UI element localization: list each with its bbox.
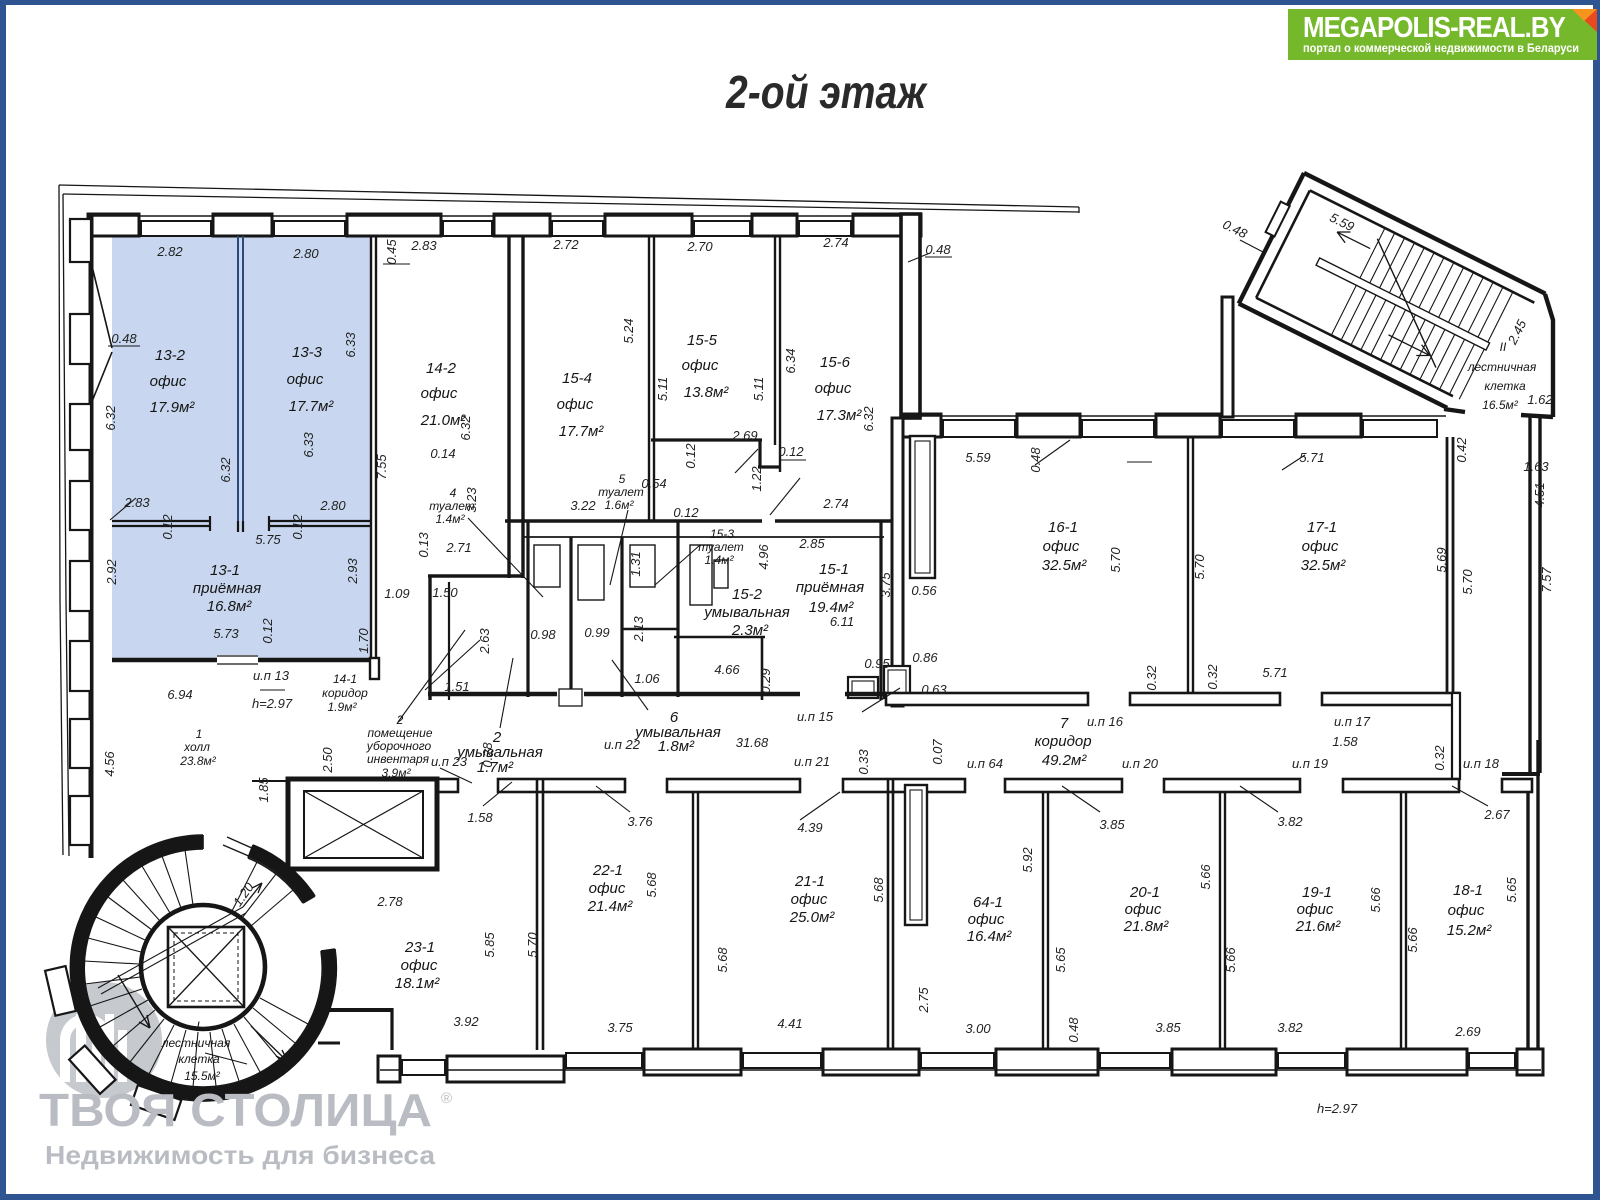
svg-text:1.58: 1.58	[1332, 734, 1358, 749]
svg-text:5.75: 5.75	[255, 532, 281, 547]
svg-text:0.56: 0.56	[911, 583, 937, 598]
svg-text:2: 2	[396, 713, 404, 727]
svg-text:2.83: 2.83	[123, 495, 150, 510]
svg-text:5.65: 5.65	[1053, 947, 1068, 973]
svg-text:2.80: 2.80	[319, 498, 346, 513]
svg-text:2.83: 2.83	[410, 238, 437, 253]
svg-text:0.95: 0.95	[864, 656, 890, 671]
svg-text:0.12: 0.12	[778, 444, 804, 459]
svg-text:13-1: 13-1	[210, 562, 240, 579]
svg-text:6.33: 6.33	[301, 432, 316, 458]
svg-text:1.22: 1.22	[749, 466, 764, 492]
svg-text:Недвижимость для бизнеса: Недвижимость для бизнеса	[45, 1140, 436, 1170]
svg-text:5.85: 5.85	[482, 932, 497, 958]
svg-text:лестничная: лестничная	[161, 1036, 231, 1050]
svg-text:15-2: 15-2	[732, 586, 763, 603]
svg-text:офис: офис	[968, 911, 1005, 928]
svg-text:0.32: 0.32	[1144, 665, 1159, 691]
svg-text:5.68: 5.68	[715, 947, 730, 973]
svg-text:5.59: 5.59	[965, 450, 990, 465]
svg-text:офис: офис	[401, 957, 438, 974]
svg-text:21.8м²: 21.8м²	[1123, 918, 1169, 935]
svg-text:клетка: клетка	[178, 1052, 220, 1066]
svg-text:4: 4	[450, 486, 457, 500]
svg-text:5.11: 5.11	[655, 377, 670, 401]
svg-text:офис: офис	[1125, 901, 1162, 918]
svg-text:22-1: 22-1	[592, 862, 623, 879]
svg-text:и.п 64: и.п 64	[967, 756, 1003, 771]
svg-text:и.п 17: и.п 17	[1334, 714, 1371, 729]
svg-text:h=2.97: h=2.97	[1317, 1101, 1358, 1116]
svg-text:64-1: 64-1	[973, 894, 1003, 911]
svg-text:офис: офис	[287, 371, 324, 388]
svg-text:3.92: 3.92	[453, 1014, 479, 1029]
svg-text:0.12: 0.12	[160, 514, 175, 540]
svg-text:2.67: 2.67	[1483, 807, 1510, 822]
svg-text:туалет: туалет	[698, 540, 744, 554]
svg-text:5: 5	[619, 472, 626, 486]
svg-text:2.80: 2.80	[292, 246, 319, 261]
svg-text:1.62: 1.62	[1527, 392, 1553, 407]
svg-text:ТВОЯ СТОЛИЦА: ТВОЯ СТОЛИЦА	[39, 1084, 432, 1136]
svg-text:17.7м²: 17.7м²	[289, 398, 334, 415]
svg-text:18.1м²: 18.1м²	[395, 975, 440, 992]
svg-text:и.п 18: и.п 18	[1463, 756, 1500, 771]
svg-text:5.71: 5.71	[1262, 665, 1287, 680]
svg-text:5.73: 5.73	[213, 626, 239, 641]
svg-text:1.8м²: 1.8м²	[658, 738, 695, 755]
svg-text:4.41: 4.41	[777, 1016, 802, 1031]
svg-text:14-1: 14-1	[333, 672, 357, 686]
svg-text:0.12: 0.12	[683, 443, 698, 469]
svg-text:2.78: 2.78	[376, 894, 403, 909]
svg-text:32.5м²: 32.5м²	[1301, 557, 1346, 574]
svg-text:офис: офис	[1448, 902, 1485, 919]
svg-text:15-6: 15-6	[820, 354, 851, 371]
svg-text:20-1: 20-1	[1129, 884, 1160, 901]
svg-text:2.70: 2.70	[686, 239, 713, 254]
svg-text:19-1: 19-1	[1302, 884, 1332, 901]
svg-text:клетка: клетка	[1484, 379, 1526, 393]
svg-text:6.94: 6.94	[167, 687, 192, 702]
svg-text:16.5м²: 16.5м²	[1482, 398, 1519, 412]
svg-text:5.70: 5.70	[525, 932, 540, 958]
svg-text:16.4м²: 16.4м²	[967, 928, 1012, 945]
svg-text:7.57: 7.57	[1539, 567, 1554, 593]
svg-text:2.93: 2.93	[345, 558, 360, 585]
svg-text:3.9м²: 3.9м²	[382, 766, 412, 780]
svg-text:5.66: 5.66	[1198, 864, 1213, 890]
svg-text:1.31: 1.31	[628, 551, 643, 576]
svg-text:3.00: 3.00	[965, 1021, 991, 1036]
svg-text:5.70: 5.70	[1108, 547, 1123, 573]
svg-text:6.32: 6.32	[103, 405, 118, 431]
svg-text:15-1: 15-1	[819, 561, 849, 578]
svg-text:1.58: 1.58	[467, 810, 493, 825]
svg-text:13-3: 13-3	[292, 344, 323, 361]
svg-text:5.70: 5.70	[1192, 554, 1207, 580]
svg-text:6.32: 6.32	[458, 415, 473, 441]
svg-text:2.69: 2.69	[731, 428, 757, 443]
svg-text:1.85: 1.85	[256, 777, 271, 803]
svg-text:2-ой этаж: 2-ой этаж	[725, 66, 928, 118]
svg-text:5.69: 5.69	[1434, 547, 1449, 572]
svg-text:0.28: 0.28	[480, 742, 495, 768]
svg-text:туалет: туалет	[598, 485, 644, 499]
svg-text:и.п 19: и.п 19	[1292, 756, 1328, 771]
svg-text:15-5: 15-5	[687, 332, 718, 349]
svg-text:2.69: 2.69	[1454, 1024, 1480, 1039]
svg-text:0.33: 0.33	[856, 749, 871, 775]
svg-text:офис: офис	[815, 380, 852, 397]
svg-text:1.63: 1.63	[1523, 459, 1549, 474]
svg-text:1.70: 1.70	[356, 628, 371, 654]
svg-text:2.71: 2.71	[445, 540, 471, 555]
svg-text:6.32: 6.32	[861, 406, 876, 432]
svg-text:4.56: 4.56	[102, 751, 117, 777]
svg-text:6.33: 6.33	[343, 332, 358, 358]
svg-text:2.92: 2.92	[104, 559, 119, 586]
svg-text:3.82: 3.82	[1277, 814, 1303, 829]
svg-text:и.п 13: и.п 13	[253, 668, 290, 683]
svg-text:4.51: 4.51	[1532, 482, 1547, 507]
svg-text:уборочного: уборочного	[366, 739, 432, 753]
svg-text:и.п 15: и.п 15	[797, 709, 834, 724]
svg-text:II: II	[1500, 340, 1507, 354]
svg-text:7.55: 7.55	[374, 454, 389, 480]
svg-text:®: ®	[441, 1090, 452, 1107]
svg-text:5.71: 5.71	[1299, 450, 1324, 465]
svg-text:1.9м²: 1.9м²	[328, 700, 358, 714]
svg-text:5.65: 5.65	[1504, 877, 1519, 903]
svg-text:2.74: 2.74	[822, 235, 848, 250]
svg-text:23.8м²: 23.8м²	[179, 754, 217, 768]
svg-text:приёмная: приёмная	[796, 579, 864, 596]
svg-text:15-3: 15-3	[710, 527, 734, 541]
svg-text:и.п 21: и.п 21	[794, 754, 830, 769]
svg-text:31.68: 31.68	[736, 735, 769, 750]
svg-text:32.5м²: 32.5м²	[1042, 557, 1087, 574]
svg-text:2.85: 2.85	[798, 536, 825, 551]
svg-text:4.66: 4.66	[714, 662, 740, 677]
svg-text:0.45: 0.45	[384, 239, 399, 265]
svg-text:офис: офис	[421, 385, 458, 402]
svg-text:офис: офис	[682, 357, 719, 374]
svg-text:2.75: 2.75	[916, 987, 931, 1014]
svg-text:4.39: 4.39	[797, 820, 822, 835]
svg-text:21-1: 21-1	[794, 873, 825, 890]
svg-text:0.48: 0.48	[925, 242, 951, 257]
svg-text:14-2: 14-2	[426, 360, 457, 377]
svg-text:21.4м²: 21.4м²	[587, 898, 633, 915]
svg-text:1.51: 1.51	[444, 679, 469, 694]
svg-text:6.34: 6.34	[783, 348, 798, 373]
svg-text:коридор: коридор	[1034, 733, 1091, 750]
svg-text:портал о коммерческой недвижим: портал о коммерческой недвижимости в Бел…	[1303, 41, 1579, 55]
svg-text:6.32: 6.32	[218, 457, 233, 483]
svg-text:офис: офис	[589, 880, 626, 897]
svg-text:3.22: 3.22	[570, 498, 596, 513]
svg-text:5.92: 5.92	[1020, 847, 1035, 873]
svg-text:и.п 23: и.п 23	[431, 754, 468, 769]
svg-text:0.98: 0.98	[530, 627, 556, 642]
svg-text:и.п 16: и.п 16	[1087, 714, 1124, 729]
svg-text:0.48: 0.48	[111, 331, 137, 346]
svg-text:18-1: 18-1	[1453, 882, 1483, 899]
svg-text:2.72: 2.72	[552, 237, 579, 252]
svg-text:17.9м²: 17.9м²	[150, 399, 195, 416]
svg-text:13.8м²: 13.8м²	[684, 384, 729, 401]
svg-text:0.42: 0.42	[1454, 437, 1469, 463]
svg-text:16.8м²: 16.8м²	[207, 598, 252, 615]
svg-text:1.4м²: 1.4м²	[436, 512, 466, 526]
svg-text:25.0м²: 25.0м²	[789, 909, 835, 926]
svg-text:лестничная: лестничная	[1467, 360, 1537, 374]
svg-text:1: 1	[196, 727, 203, 741]
svg-text:5.66: 5.66	[1223, 947, 1238, 973]
svg-text:офис: офис	[1302, 538, 1339, 555]
svg-text:0.63: 0.63	[921, 682, 947, 697]
svg-text:5.68: 5.68	[871, 877, 886, 903]
svg-text:0.32: 0.32	[1205, 664, 1220, 690]
svg-text:15-4: 15-4	[562, 370, 592, 387]
svg-text:0.54: 0.54	[641, 476, 666, 491]
svg-text:и.п 22: и.п 22	[604, 737, 641, 752]
svg-text:2.74: 2.74	[822, 496, 848, 511]
svg-text:0.12: 0.12	[673, 505, 699, 520]
svg-text:умывальная: умывальная	[703, 604, 789, 621]
svg-text:3.75: 3.75	[607, 1020, 633, 1035]
svg-text:0.12: 0.12	[290, 514, 305, 540]
svg-text:2.13: 2.13	[631, 616, 646, 643]
svg-text:1.6м²: 1.6м²	[605, 498, 635, 512]
svg-text:3.76: 3.76	[627, 814, 653, 829]
svg-text:инвентаря: инвентаря	[367, 752, 430, 766]
svg-text:1.06: 1.06	[634, 671, 660, 686]
svg-text:и.п 20: и.п 20	[1122, 756, 1159, 771]
svg-text:5.24: 5.24	[621, 318, 636, 343]
svg-text:офис: офис	[150, 373, 187, 390]
svg-text:2.63: 2.63	[477, 628, 492, 655]
svg-text:4.96: 4.96	[756, 544, 771, 570]
svg-text:17-1: 17-1	[1307, 519, 1337, 536]
svg-text:0.99: 0.99	[584, 625, 609, 640]
svg-text:2.82: 2.82	[156, 244, 183, 259]
svg-text:3.23: 3.23	[464, 487, 479, 513]
svg-text:49.2м²: 49.2м²	[1042, 752, 1087, 769]
svg-text:офис: офис	[791, 891, 828, 908]
svg-text:0.29: 0.29	[758, 668, 773, 693]
svg-text:16-1: 16-1	[1048, 519, 1078, 536]
svg-text:0.13: 0.13	[416, 532, 431, 558]
svg-text:2.3м²: 2.3м²	[731, 622, 769, 639]
svg-text:коридор: коридор	[322, 686, 368, 700]
svg-text:1.50: 1.50	[432, 585, 458, 600]
svg-text:6.11: 6.11	[830, 614, 854, 629]
svg-text:5.11: 5.11	[751, 377, 766, 401]
svg-text:3.82: 3.82	[1277, 1020, 1303, 1035]
svg-text:0.48: 0.48	[1066, 1017, 1081, 1043]
svg-text:5.66: 5.66	[1405, 927, 1420, 953]
svg-text:15.5м²: 15.5м²	[184, 1069, 221, 1083]
svg-text:офис: офис	[1043, 538, 1080, 555]
svg-text:офис: офис	[1297, 901, 1334, 918]
svg-text:0.14: 0.14	[430, 446, 455, 461]
svg-text:23-1: 23-1	[404, 939, 435, 956]
svg-text:холл: холл	[183, 740, 210, 754]
svg-text:офис: офис	[557, 396, 594, 413]
svg-text:0.32: 0.32	[1432, 745, 1447, 771]
svg-text:7: 7	[1060, 715, 1069, 732]
svg-text:1.09: 1.09	[384, 586, 409, 601]
svg-text:1.4м²: 1.4м²	[705, 553, 735, 567]
svg-text:3.85: 3.85	[1155, 1020, 1181, 1035]
svg-text:0.12: 0.12	[260, 618, 275, 644]
svg-text:0.48: 0.48	[1028, 447, 1043, 473]
svg-text:приёмная: приёмная	[193, 580, 261, 597]
svg-text:13-2: 13-2	[155, 347, 186, 364]
svg-text:h=2.97: h=2.97	[252, 696, 293, 711]
svg-text:17.3м²: 17.3м²	[817, 407, 862, 424]
svg-text:помещение: помещение	[367, 726, 432, 740]
svg-text:21.6м²: 21.6м²	[1295, 918, 1341, 935]
svg-text:17.7м²: 17.7м²	[559, 423, 604, 440]
svg-text:3.85: 3.85	[1099, 817, 1125, 832]
svg-text:15.2м²: 15.2м²	[1447, 922, 1492, 939]
svg-text:3.75: 3.75	[878, 572, 893, 598]
svg-text:5.66: 5.66	[1368, 887, 1383, 913]
svg-text:0.86: 0.86	[912, 650, 938, 665]
svg-text:MEGAPOLIS-REAL.BY: MEGAPOLIS-REAL.BY	[1303, 12, 1566, 44]
svg-text:5.70: 5.70	[1460, 569, 1475, 595]
svg-text:2.50: 2.50	[320, 747, 335, 774]
svg-text:5.68: 5.68	[644, 872, 659, 898]
svg-text:0.07: 0.07	[930, 739, 945, 765]
